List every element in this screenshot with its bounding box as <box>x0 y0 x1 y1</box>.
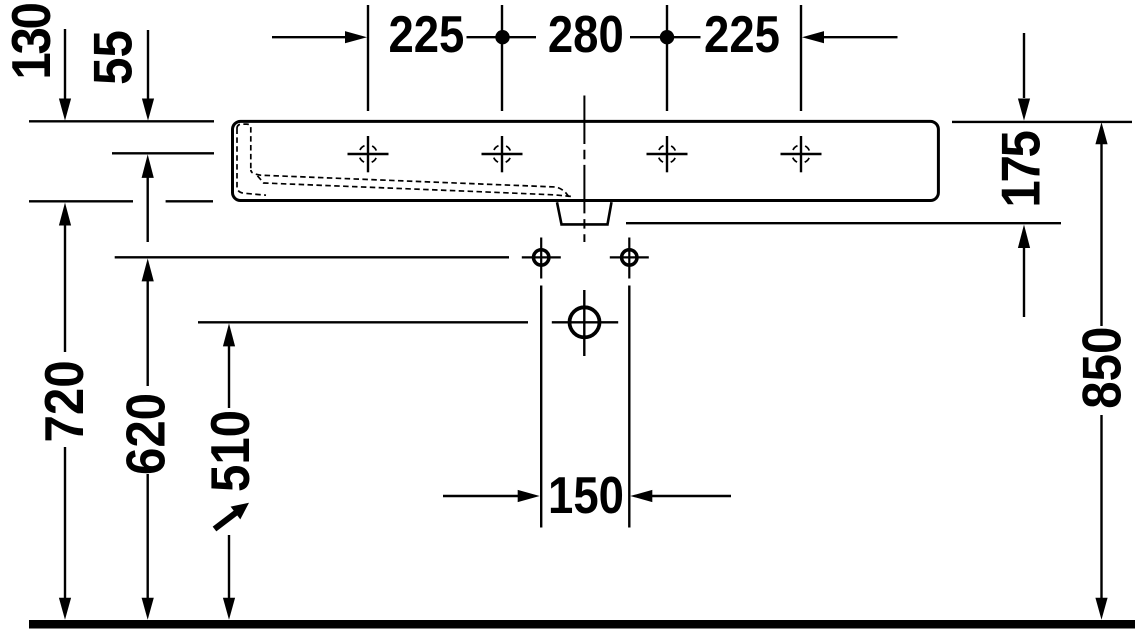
svg-text:130: 130 <box>1 4 62 80</box>
svg-text:280: 280 <box>548 6 624 64</box>
svg-text:150: 150 <box>548 467 624 525</box>
svg-text:510: 510 <box>201 410 262 492</box>
svg-text:850: 850 <box>1072 327 1133 409</box>
svg-text:720: 720 <box>35 360 96 442</box>
svg-text:225: 225 <box>704 6 780 64</box>
svg-text:55: 55 <box>83 30 144 85</box>
svg-text:225: 225 <box>388 6 464 64</box>
svg-text:175: 175 <box>991 131 1052 208</box>
svg-text:620: 620 <box>116 393 177 475</box>
